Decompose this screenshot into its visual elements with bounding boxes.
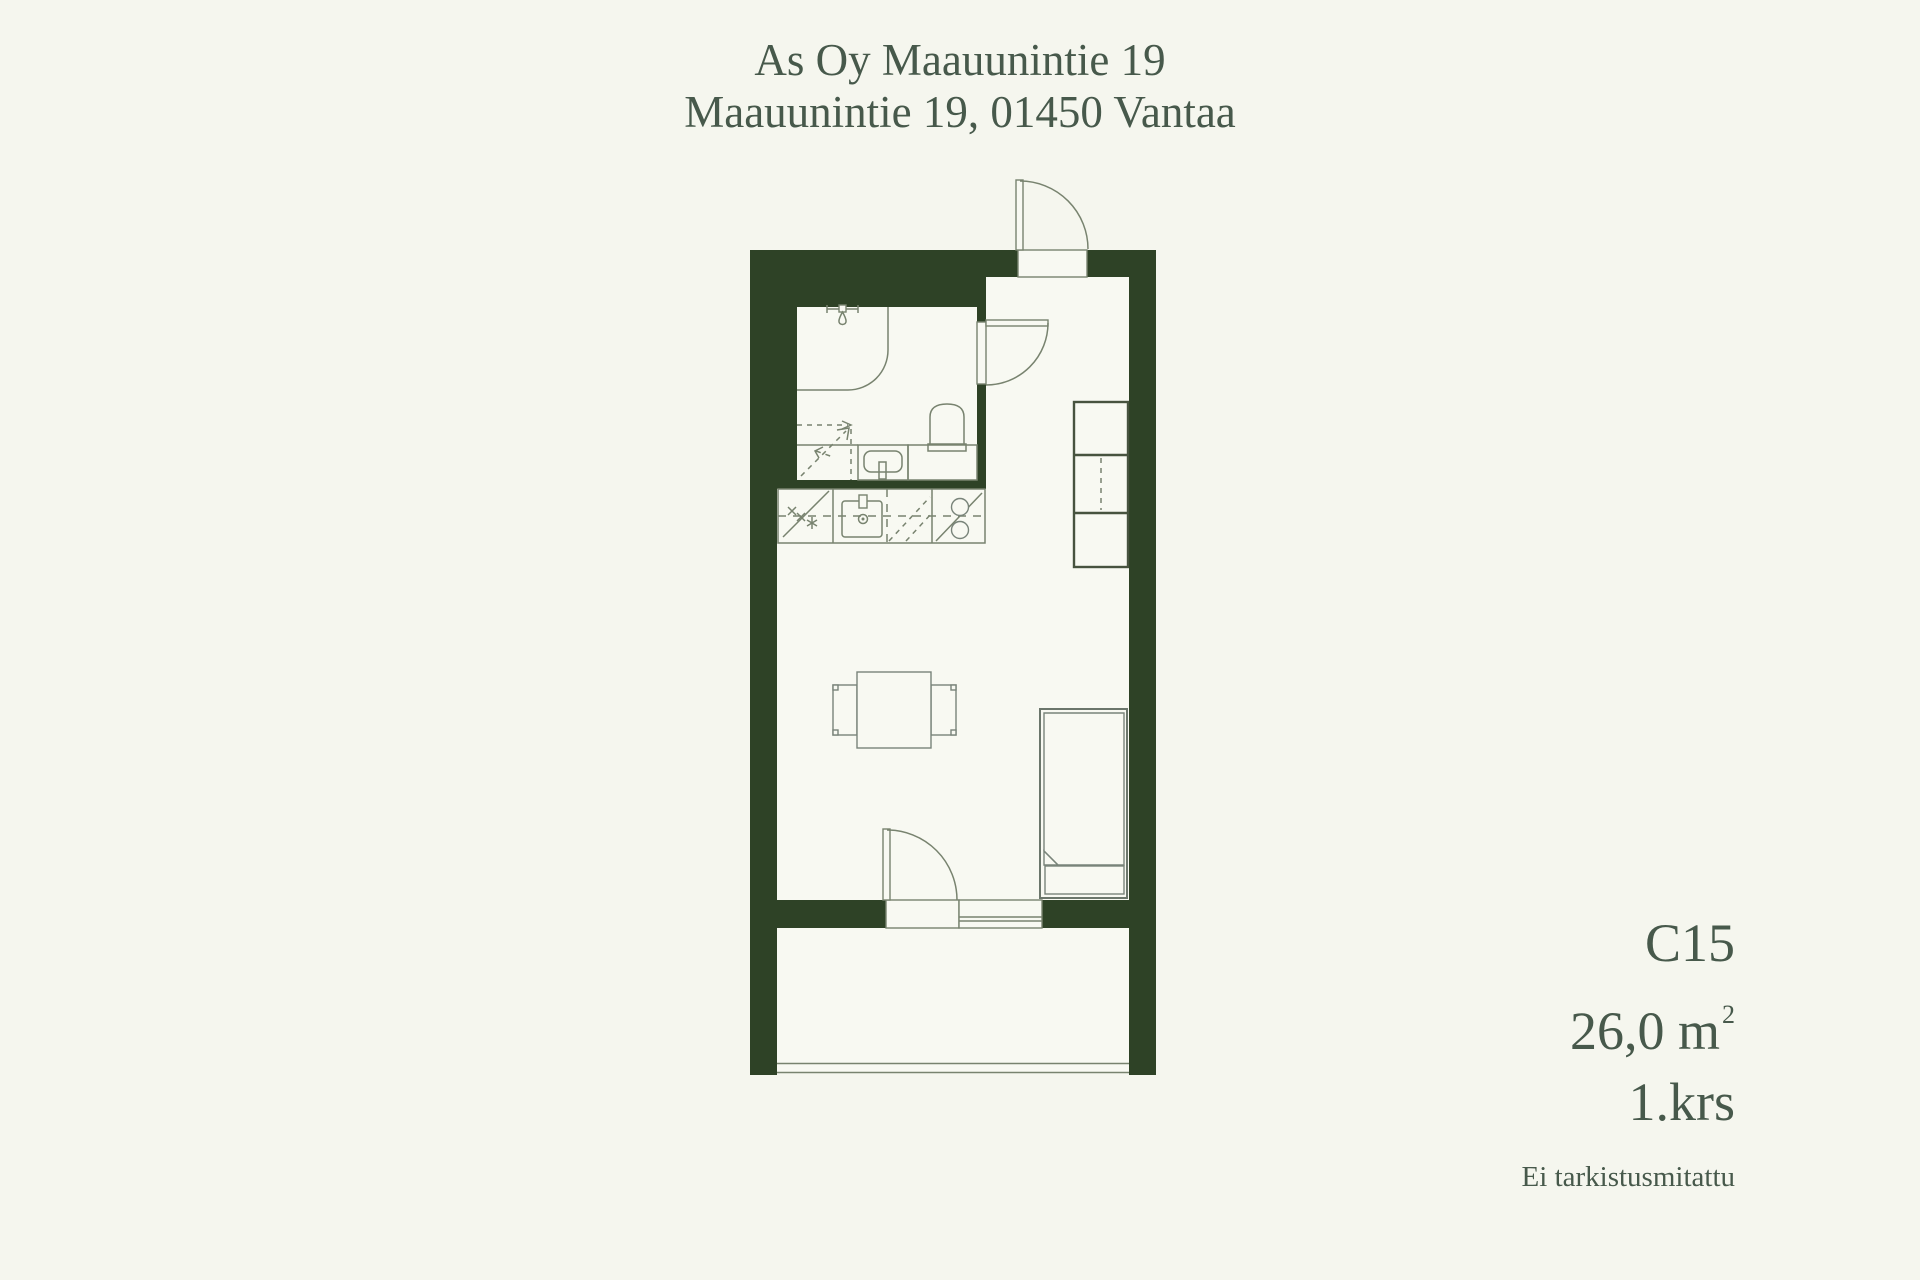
- chair: [833, 685, 857, 735]
- floor-plan-page: As Oy Maauunintie 19 Maauunintie 19, 014…: [0, 0, 1920, 1280]
- chair: [931, 685, 956, 735]
- apartment-info: C15 26,0 m2 1.krs Ei tarkistusmitattu: [1522, 908, 1735, 1194]
- window: [959, 900, 1042, 928]
- entrance-door: [1016, 180, 1088, 277]
- measurement-disclaimer: Ei tarkistusmitattu: [1522, 1160, 1735, 1194]
- apartment-area: 26,0 m2: [1522, 979, 1735, 1067]
- bathroom: [797, 305, 977, 480]
- apartment-floor-number: 1.krs: [1522, 1067, 1735, 1138]
- square-meter-superscript: 2: [1722, 1000, 1735, 1029]
- apartment-id: C15: [1522, 908, 1735, 979]
